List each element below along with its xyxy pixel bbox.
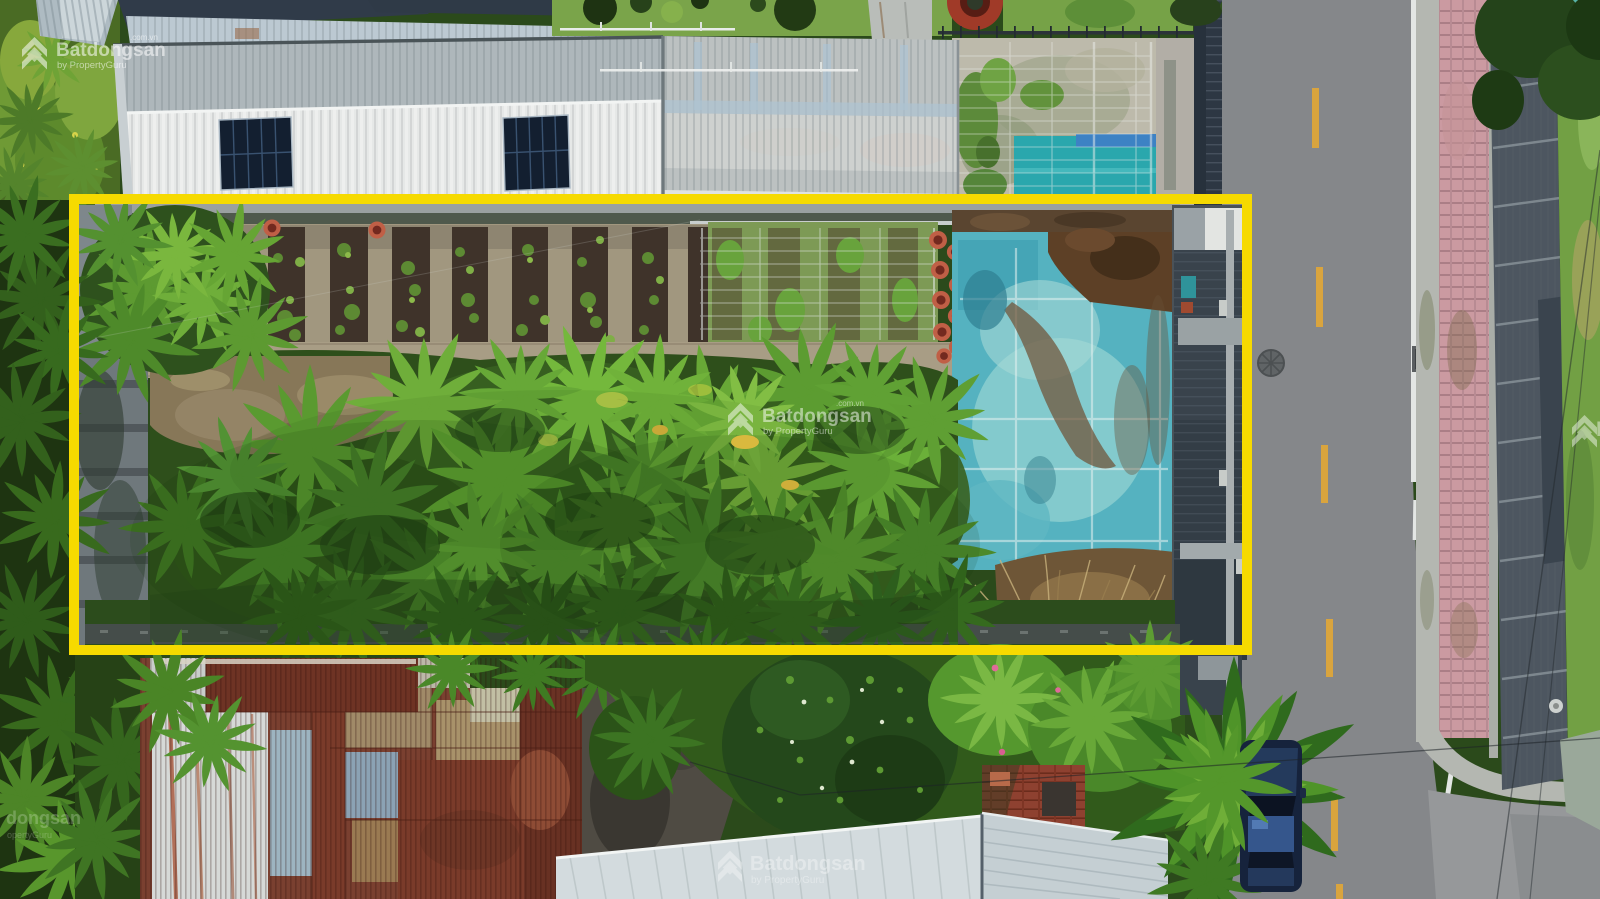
svg-text:.com.vn: .com.vn: [836, 399, 864, 408]
svg-text:by PropertyGuru: by PropertyGuru: [763, 426, 833, 437]
svg-text:by PropertyGuru: by PropertyGuru: [57, 60, 127, 71]
svg-text:Batdongsan: Batdongsan: [762, 406, 872, 427]
svg-text:by PropertyGuru: by PropertyGuru: [751, 875, 824, 886]
svg-text:dongsan: dongsan: [6, 808, 81, 828]
svg-text:Batdongsan: Batdongsan: [750, 853, 866, 875]
svg-text:opertyGuru: opertyGuru: [7, 830, 52, 840]
svg-text:.com.vn: .com.vn: [130, 33, 158, 42]
svg-text:B: B: [1596, 418, 1600, 441]
svg-text:Batdongsan: Batdongsan: [56, 40, 166, 61]
